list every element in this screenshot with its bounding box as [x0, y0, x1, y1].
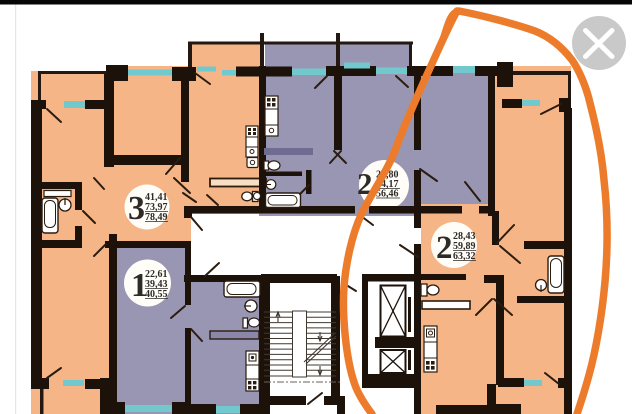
svg-text:3: 3	[128, 190, 145, 227]
svg-text:2: 2	[436, 230, 453, 266]
